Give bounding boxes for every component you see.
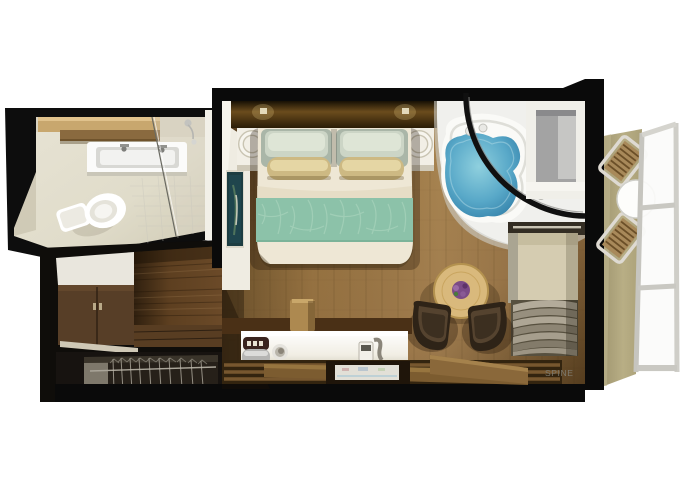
svg-text:SPINE: SPINE <box>545 368 574 378</box>
